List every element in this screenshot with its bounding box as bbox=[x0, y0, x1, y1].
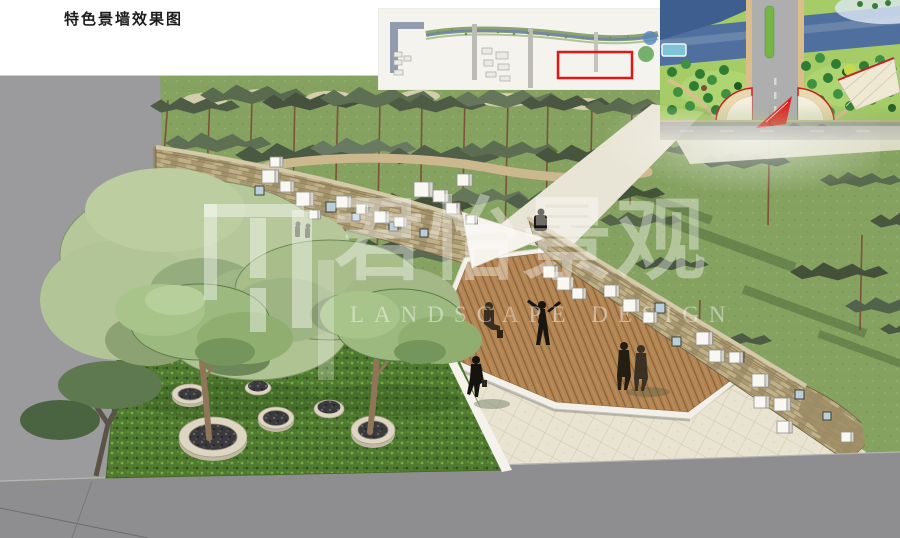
page-title: 特色景墙效果图 bbox=[64, 8, 183, 29]
master-plan-detail bbox=[660, 0, 900, 152]
design-board: 君怡景观 LANDSCAPE DESIGN 特色景墙效果图 bbox=[0, 0, 900, 538]
strip-location-plan bbox=[378, 8, 660, 90]
